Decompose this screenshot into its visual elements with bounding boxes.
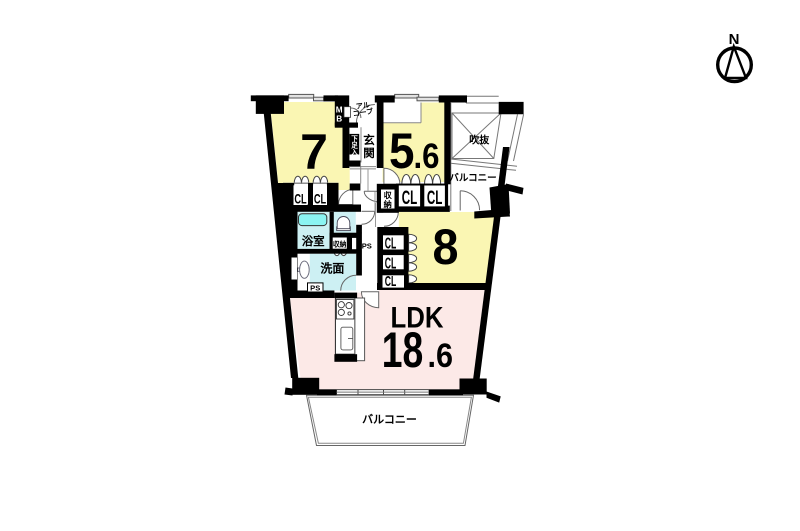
svg-text:18: 18 bbox=[382, 322, 424, 378]
svg-text:M: M bbox=[336, 106, 343, 115]
svg-text:PS: PS bbox=[362, 242, 372, 251]
svg-text:収納: 収納 bbox=[333, 240, 347, 249]
svg-text:PS: PS bbox=[310, 283, 320, 292]
svg-text:納: 納 bbox=[384, 199, 392, 209]
svg-text:CL: CL bbox=[385, 236, 397, 253]
svg-text:洗面: 洗面 bbox=[320, 260, 344, 275]
svg-text:バルコニー: バルコニー bbox=[362, 413, 417, 426]
svg-text:7: 7 bbox=[300, 124, 328, 180]
svg-text:CL: CL bbox=[314, 191, 326, 206]
svg-text:CL: CL bbox=[402, 188, 418, 209]
svg-text:CL: CL bbox=[385, 255, 397, 272]
svg-text:N: N bbox=[729, 31, 740, 48]
svg-text:関: 関 bbox=[363, 147, 375, 160]
svg-text:CL: CL bbox=[385, 273, 397, 290]
svg-text:8: 8 bbox=[433, 219, 459, 275]
svg-text:CL: CL bbox=[294, 191, 306, 206]
svg-text:5: 5 bbox=[389, 123, 415, 179]
svg-text:吹抜: 吹抜 bbox=[469, 134, 490, 147]
svg-text:CL: CL bbox=[427, 188, 443, 209]
svg-text:.6: .6 bbox=[428, 337, 454, 375]
svg-text:玄: 玄 bbox=[363, 133, 375, 147]
svg-text:収: 収 bbox=[384, 190, 393, 200]
svg-text:B: B bbox=[336, 115, 342, 124]
svg-text:入: 入 bbox=[351, 148, 358, 156]
svg-text:バルコニー: バルコニー bbox=[449, 172, 496, 184]
svg-text:浴室: 浴室 bbox=[302, 234, 325, 248]
svg-text:.6: .6 bbox=[414, 137, 440, 176]
